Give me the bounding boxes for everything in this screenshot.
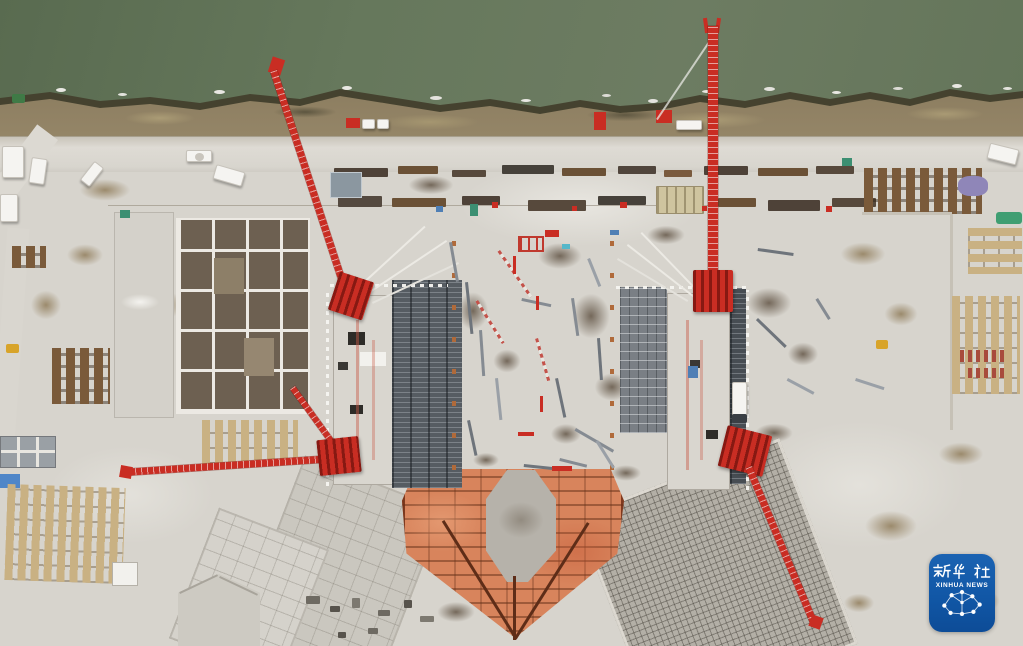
site-detail bbox=[718, 198, 756, 207]
shore-boat bbox=[56, 88, 66, 92]
cyan-bits bbox=[562, 244, 570, 249]
shore-boat bbox=[764, 87, 775, 91]
site-detail bbox=[978, 603, 982, 607]
brown-stack bbox=[52, 348, 110, 404]
site-detail bbox=[114, 212, 174, 418]
site-detail bbox=[420, 616, 434, 622]
timber-stick-field bbox=[968, 228, 1022, 274]
timber-stick-field bbox=[952, 296, 1020, 394]
container-stack bbox=[0, 436, 56, 468]
foundation-grid bbox=[176, 218, 310, 414]
site-detail bbox=[706, 430, 718, 439]
red-shore-equipment bbox=[346, 118, 360, 128]
network-globe-icon bbox=[941, 589, 983, 616]
green-container bbox=[842, 158, 852, 166]
site-detail bbox=[702, 206, 707, 211]
site-detail bbox=[306, 596, 320, 604]
truck bbox=[28, 157, 47, 185]
red-capped-sticks bbox=[960, 350, 1006, 362]
site-detail bbox=[961, 601, 964, 604]
green-container bbox=[470, 204, 478, 216]
pallet-field bbox=[4, 484, 125, 584]
site-detail bbox=[768, 200, 820, 211]
site-detail bbox=[826, 206, 832, 212]
yard-boundary-h bbox=[862, 212, 952, 215]
site-detail bbox=[244, 338, 274, 376]
site-detail bbox=[398, 166, 438, 174]
site-detail bbox=[545, 230, 559, 237]
truck bbox=[2, 146, 24, 178]
site-detail bbox=[960, 564, 964, 568]
site-detail bbox=[467, 420, 477, 456]
trailer-truck bbox=[732, 382, 747, 416]
deck-center-seam bbox=[513, 576, 516, 640]
site-detail bbox=[378, 610, 390, 616]
shore-boat bbox=[648, 99, 658, 103]
site-detail bbox=[816, 166, 854, 174]
site-detail bbox=[352, 598, 360, 608]
green-shore-object bbox=[12, 94, 25, 103]
site-detail bbox=[60, 240, 110, 270]
site-detail bbox=[330, 606, 340, 612]
shore-boat bbox=[832, 91, 841, 94]
site-detail bbox=[404, 600, 412, 608]
site-detail bbox=[732, 414, 747, 423]
yellow-loader bbox=[876, 340, 888, 349]
white-material-pile bbox=[116, 292, 164, 312]
red-shore-equipment bbox=[594, 112, 606, 130]
site-detail bbox=[528, 200, 586, 211]
site-detail bbox=[518, 432, 534, 436]
green-machine bbox=[996, 212, 1022, 224]
site-detail bbox=[960, 612, 964, 616]
site-detail bbox=[535, 338, 550, 381]
site-detail bbox=[700, 340, 703, 460]
site-detail bbox=[855, 505, 927, 547]
site-detail bbox=[950, 593, 954, 597]
site-detail bbox=[620, 202, 627, 208]
brown-stack bbox=[12, 246, 46, 268]
shore-boat bbox=[342, 86, 352, 90]
site-detail bbox=[195, 153, 204, 161]
site-detail bbox=[815, 298, 830, 320]
site-detail bbox=[377, 119, 389, 129]
site-detail bbox=[362, 119, 375, 129]
xinhua-news-watermark: XINHUA NEWS bbox=[929, 554, 995, 632]
red-scaffold-frame bbox=[518, 236, 544, 252]
crane-2-cab bbox=[316, 436, 362, 476]
site-detail bbox=[338, 632, 346, 638]
site-detail bbox=[562, 168, 606, 176]
crane-2-jib-tip bbox=[119, 465, 133, 479]
blue-container bbox=[436, 206, 443, 212]
site-detail bbox=[372, 340, 375, 460]
white-truck bbox=[676, 120, 702, 130]
site-detail bbox=[502, 165, 554, 174]
site-detail bbox=[536, 296, 539, 310]
blue-container bbox=[610, 230, 619, 235]
foundation-pit-area bbox=[114, 212, 310, 418]
site-detail bbox=[214, 258, 244, 294]
site-detail bbox=[971, 595, 975, 599]
site-detail bbox=[787, 378, 815, 395]
site-detail bbox=[488, 345, 526, 377]
site-detail bbox=[664, 170, 692, 177]
site-detail bbox=[587, 258, 601, 287]
site-detail bbox=[686, 320, 689, 470]
site-detail bbox=[878, 298, 924, 330]
site-detail bbox=[540, 396, 543, 412]
shore-boat bbox=[214, 90, 225, 94]
site-detail bbox=[555, 378, 566, 418]
tan-pallet-block bbox=[656, 186, 704, 214]
shore-boat bbox=[430, 96, 442, 100]
shore-boat bbox=[1003, 87, 1012, 90]
right-building-steel-frame bbox=[620, 287, 667, 433]
site-detail bbox=[943, 566, 945, 576]
site-detail bbox=[960, 590, 964, 594]
shore-boat bbox=[952, 84, 962, 88]
crane-3-boom bbox=[708, 26, 718, 298]
site-detail bbox=[368, 628, 378, 634]
anchor-dots bbox=[610, 236, 614, 470]
site-detail bbox=[479, 330, 485, 376]
site-detail bbox=[640, 222, 692, 248]
red-capped-sticks bbox=[968, 368, 1008, 378]
site-detail bbox=[618, 166, 656, 174]
blue-tarp bbox=[688, 366, 698, 378]
site-detail bbox=[832, 238, 894, 270]
site-detail bbox=[977, 565, 978, 567]
site-detail bbox=[338, 362, 348, 370]
shore-boat bbox=[893, 87, 903, 90]
watermark-en-text: XINHUA NEWS bbox=[936, 582, 989, 589]
site-detail bbox=[492, 202, 498, 208]
site-detail bbox=[930, 438, 992, 470]
purple-mesh-pile bbox=[958, 176, 988, 196]
site-detail bbox=[972, 610, 976, 614]
shore-boat bbox=[602, 94, 611, 97]
site-detail bbox=[452, 170, 486, 177]
site-detail bbox=[513, 256, 516, 274]
shore-boat bbox=[118, 93, 127, 96]
mixer-truck bbox=[186, 150, 212, 162]
site-detail bbox=[495, 378, 502, 420]
site-detail bbox=[758, 168, 808, 176]
white-shed bbox=[112, 562, 138, 586]
crane-3-cab bbox=[693, 270, 733, 312]
site-detail bbox=[855, 378, 884, 390]
xinhua-cn-wordmark bbox=[933, 563, 991, 581]
site-detail bbox=[949, 611, 953, 615]
site-detail bbox=[572, 206, 577, 211]
shore-boat bbox=[521, 99, 531, 102]
green-container bbox=[120, 210, 130, 218]
yellow-loader bbox=[6, 344, 19, 353]
site-detail bbox=[782, 338, 824, 370]
site-detail bbox=[758, 248, 794, 256]
site-detail bbox=[943, 604, 947, 608]
deck-gray-hex-patch bbox=[486, 470, 556, 582]
aerial-construction-photo: XINHUA NEWS bbox=[0, 0, 1023, 646]
site-detail bbox=[25, 285, 67, 325]
site-detail bbox=[552, 466, 572, 471]
gray-container bbox=[330, 172, 362, 198]
truck bbox=[0, 194, 18, 222]
